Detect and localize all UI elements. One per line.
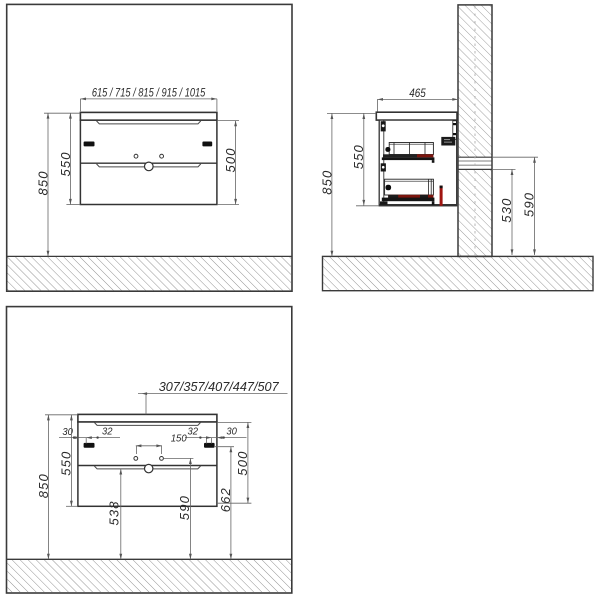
svg-text:500: 500 <box>235 451 250 476</box>
svg-text:30: 30 <box>226 425 237 437</box>
svg-text:850: 850 <box>36 474 51 499</box>
svg-text:32: 32 <box>102 426 113 438</box>
svg-text:465: 465 <box>409 88 426 100</box>
svg-text:550: 550 <box>59 451 74 476</box>
svg-text:662: 662 <box>218 488 233 513</box>
svg-text:590: 590 <box>177 495 192 520</box>
svg-text:32: 32 <box>188 426 199 438</box>
svg-text:850: 850 <box>319 170 334 195</box>
svg-text:307/357/407/447/507: 307/357/407/447/507 <box>159 379 280 394</box>
svg-text:615 / 715 / 815 / 915 / 1015: 615 / 715 / 815 / 915 / 1015 <box>92 85 206 99</box>
svg-text:850: 850 <box>36 171 51 196</box>
svg-text:500: 500 <box>223 148 238 173</box>
svg-text:550: 550 <box>351 145 366 170</box>
svg-text:590: 590 <box>522 192 537 217</box>
svg-text:538: 538 <box>106 501 121 526</box>
svg-text:550: 550 <box>58 152 73 177</box>
svg-text:530: 530 <box>499 198 514 223</box>
svg-text:150: 150 <box>171 433 187 445</box>
